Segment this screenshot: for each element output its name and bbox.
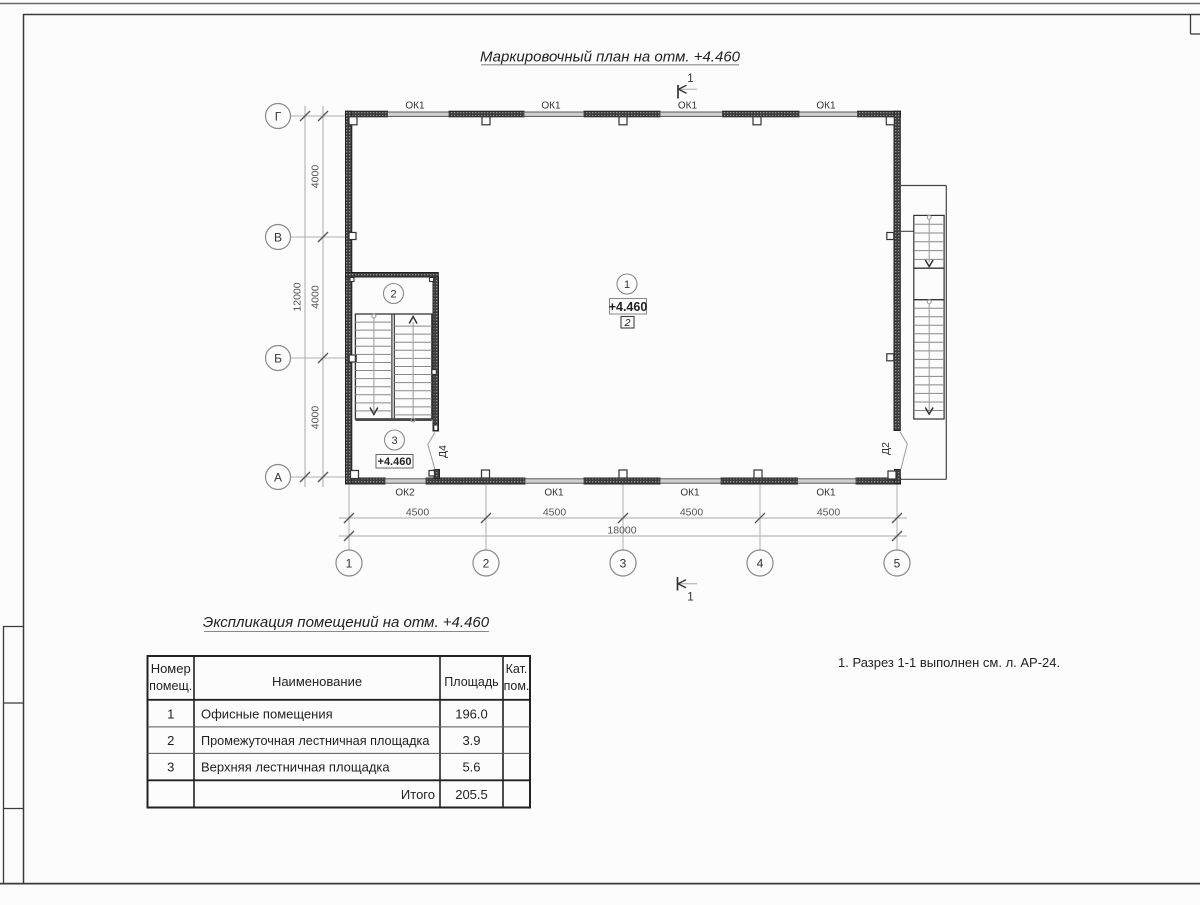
svg-text:1: 1 — [687, 592, 693, 604]
svg-text:Наименование: Наименование — [272, 674, 362, 689]
svg-text:205.5: 205.5 — [455, 787, 488, 802]
svg-text:Д2: Д2 — [880, 442, 892, 455]
svg-text:ОК1: ОК1 — [680, 488, 700, 499]
svg-text:4000: 4000 — [310, 285, 322, 309]
svg-text:ОК1: ОК1 — [678, 101, 698, 112]
svg-text:4000: 4000 — [310, 406, 322, 430]
svg-text:+4.460: +4.460 — [378, 456, 412, 468]
svg-text:Офисные помещения: Офисные помещения — [201, 707, 333, 722]
svg-text:4500: 4500 — [817, 507, 841, 519]
svg-text:Промежуточная лестничная площа: Промежуточная лестничная площадка — [201, 734, 430, 748]
svg-text:2: 2 — [390, 289, 396, 301]
svg-text:5: 5 — [894, 557, 901, 571]
svg-text:Верхняя лестничная площадка: Верхняя лестничная площадка — [201, 760, 390, 775]
svg-text:5.6: 5.6 — [462, 760, 480, 775]
svg-text:Итого: Итого — [401, 787, 435, 802]
svg-text:+4.460: +4.460 — [609, 300, 648, 314]
svg-text:4000: 4000 — [310, 165, 322, 189]
svg-text:Б: Б — [274, 352, 282, 366]
svg-text:Маркировочный план на отм. +4.: Маркировочный план на отм. +4.460 — [480, 49, 741, 66]
svg-text:196.0: 196.0 — [455, 707, 488, 722]
svg-text:1. Разрез 1-1 выполнен см. л.: 1. Разрез 1-1 выполнен см. л. АР-24. — [838, 655, 1060, 670]
svg-text:ОК1: ОК1 — [541, 101, 561, 112]
svg-text:ОК2: ОК2 — [395, 488, 415, 499]
svg-text:Площадь: Площадь — [444, 675, 498, 689]
svg-text:1: 1 — [687, 73, 693, 85]
svg-text:пом.: пом. — [504, 679, 530, 693]
svg-text:2: 2 — [624, 317, 631, 329]
svg-text:3.9: 3.9 — [462, 733, 480, 748]
svg-text:4500: 4500 — [406, 507, 430, 519]
svg-text:ОК1: ОК1 — [544, 488, 564, 499]
svg-text:Г: Г — [275, 110, 282, 124]
svg-text:ОК1: ОК1 — [405, 101, 425, 112]
svg-text:В: В — [274, 231, 282, 245]
svg-text:1: 1 — [346, 557, 353, 571]
svg-text:4500: 4500 — [543, 507, 567, 519]
svg-text:2: 2 — [167, 733, 174, 748]
svg-text:ОК1: ОК1 — [816, 488, 836, 499]
svg-text:А: А — [274, 471, 282, 485]
svg-text:Экспликация помещений на отм.: Экспликация помещений на отм. +4.460 — [203, 614, 490, 631]
svg-text:3: 3 — [620, 557, 627, 571]
svg-text:помещ.: помещ. — [149, 679, 192, 693]
svg-text:2: 2 — [483, 557, 490, 571]
svg-text:Номер: Номер — [151, 661, 191, 676]
svg-text:3: 3 — [391, 435, 397, 447]
svg-text:4500: 4500 — [680, 507, 704, 519]
svg-text:3: 3 — [167, 760, 174, 775]
svg-text:Д4: Д4 — [437, 445, 449, 458]
svg-text:12000: 12000 — [292, 282, 304, 311]
svg-text:1: 1 — [167, 707, 174, 722]
svg-text:Кат.: Кат. — [506, 662, 528, 676]
svg-text:18000: 18000 — [607, 525, 636, 537]
svg-text:4: 4 — [757, 557, 764, 571]
svg-text:ОК1: ОК1 — [816, 101, 836, 112]
svg-text:1: 1 — [624, 279, 630, 291]
